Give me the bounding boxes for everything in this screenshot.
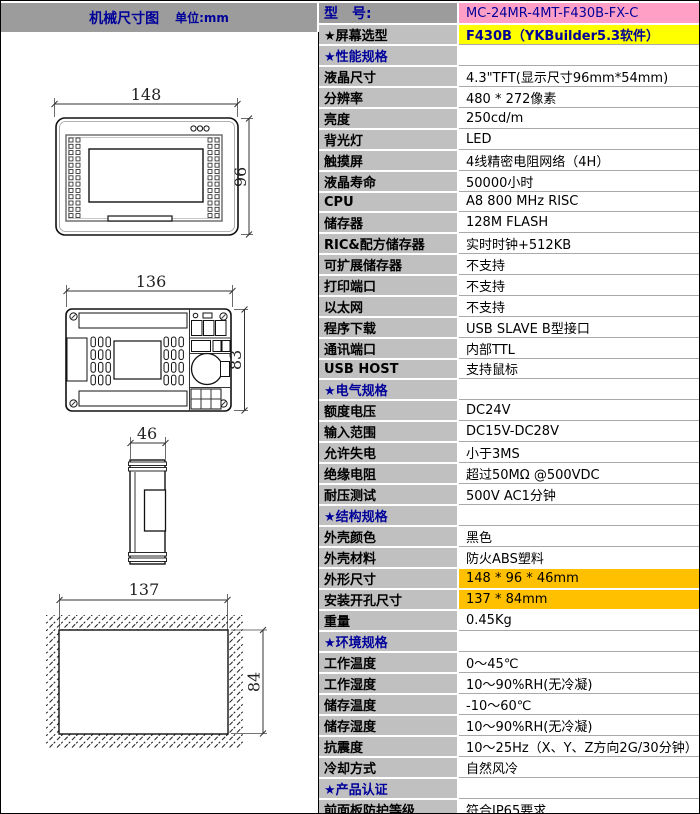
dimension-label: 136 — [136, 272, 167, 291]
spec-value: 防火ABS塑料 — [459, 546, 699, 567]
spec-label: 亮度 — [319, 107, 459, 128]
product-spec-sheet: 机械尺寸图 单位:mm — [0, 0, 700, 814]
spec-value: 10～90%RH(无冷凝) — [459, 714, 699, 735]
section-row: ★结构规格 — [319, 504, 699, 525]
cutout-opening — [59, 630, 228, 734]
spec-value: 128M FLASH — [459, 211, 699, 232]
spec-value: 支持鼠标 — [459, 358, 699, 378]
spec-label: 安装开孔尺寸 — [319, 588, 459, 609]
mechanical-drawing-panel: 机械尺寸图 单位:mm — [1, 1, 319, 813]
spec-row: 外壳材料防火ABS塑料 — [319, 546, 699, 567]
spec-label: 外壳材料 — [319, 546, 459, 567]
spec-row: 打印端口不支持 — [319, 274, 699, 295]
spec-value: DC15V-DC28V — [459, 420, 699, 441]
spec-label: 工作温度 — [319, 651, 459, 672]
section-title: ★环境规格 — [319, 630, 459, 651]
spec-label: 储存湿度 — [319, 714, 459, 735]
spec-label: 液晶尺寸 — [319, 65, 459, 86]
spec-value: 148 * 96 * 46mm — [459, 567, 699, 588]
spec-value: 4.3"TFT(显示尺寸96mm*54mm) — [459, 65, 699, 86]
spec-row: 绝缘电阻超过50MΩ @500VDC — [319, 462, 699, 483]
section-title: ★结构规格 — [319, 504, 459, 525]
spec-row: 冷却方式自然风冷 — [319, 756, 699, 777]
spec-value: 不支持 — [459, 295, 699, 316]
spec-row: 液晶尺寸4.3"TFT(显示尺寸96mm*54mm) — [319, 65, 699, 86]
dimension-label: 84 — [245, 672, 264, 692]
spec-label: 输入范围 — [319, 420, 459, 441]
spec-row: 耐压测试500V AC1分钟 — [319, 483, 699, 504]
spec-label: 通讯端口 — [319, 337, 459, 358]
spec-label: 分辨率 — [319, 86, 459, 107]
spec-label: 打印端口 — [319, 274, 459, 295]
spec-value: 自然风冷 — [459, 756, 699, 777]
spec-row: RIC&配方储存器实时时钟+512KB — [319, 232, 699, 253]
spec-label: 背光灯 — [319, 128, 459, 149]
spec-row: 分辨率480 * 272像素 — [319, 86, 699, 107]
spec-value: 内部TTL — [459, 337, 699, 358]
spec-value: 0～45℃ — [459, 651, 699, 672]
spec-row: 背光灯LED — [319, 128, 699, 149]
spec-label: 液晶寿命 — [319, 170, 459, 191]
screen-type-row: ★屏幕选型F430B（YKBuilder5.3软件） — [319, 23, 699, 44]
section-row: ★性能规格 — [319, 44, 699, 65]
spec-value: 小于3MS — [459, 441, 699, 462]
spec-label: 以太网 — [319, 295, 459, 316]
spec-row: 储存湿度10～90%RH(无冷凝) — [319, 714, 699, 735]
spec-value: 不支持 — [459, 274, 699, 295]
spec-value: -10～60℃ — [459, 693, 699, 714]
spec-label: 程序下载 — [319, 316, 459, 337]
spec-value: 超过50MΩ @500VDC — [459, 462, 699, 483]
spec-value: 250cd/m — [459, 107, 699, 128]
spec-value: USB SLAVE B型接口 — [459, 316, 699, 337]
drawing-panel-header: 机械尺寸图 单位:mm — [1, 1, 319, 32]
dimension-label: 137 — [129, 580, 160, 599]
spec-value: 黑色 — [459, 525, 699, 546]
spec-row: 亮度250cd/m — [319, 107, 699, 128]
model-label: 型 号: — [319, 1, 459, 23]
section-title: ★产品认证 — [319, 777, 459, 798]
spec-row: 程序下载USB SLAVE B型接口 — [319, 316, 699, 337]
spec-value: 500V AC1分钟 — [459, 483, 699, 504]
spec-value: LED — [459, 128, 699, 149]
spec-value: 4线精密电阻网络（4H） — [459, 149, 699, 170]
spec-table: 型 号:MC-24MR-4MT-F430B-FX-C ★屏幕选型F430B（YK… — [319, 1, 699, 814]
spec-label: 允许失电 — [319, 441, 459, 462]
model-row: 型 号:MC-24MR-4MT-F430B-FX-C — [319, 1, 699, 23]
spec-label: 前面板防护等级 — [319, 798, 459, 814]
drawing-panel-title: 机械尺寸图 — [89, 8, 159, 28]
cutout-size-row: 安装开孔尺寸137 * 84mm — [319, 588, 699, 609]
spec-label: 储存温度 — [319, 693, 459, 714]
spec-row: 工作湿度10～90%RH(无冷凝) — [319, 672, 699, 693]
spec-value: 10～25Hz（X、Y、Z方向2G/30分钟） — [459, 735, 699, 756]
spec-row: 重量0.45Kg — [319, 609, 699, 630]
spec-row: 以太网不支持 — [319, 295, 699, 316]
spec-value: 480 * 272像素 — [459, 86, 699, 107]
spec-value: 实时时钟+512KB — [459, 232, 699, 253]
spec-label: 可扩展储存器 — [319, 253, 459, 274]
spec-row: 额度电压DC24V — [319, 399, 699, 420]
section-title: ★电气规格 — [319, 378, 459, 399]
dimension-label: 46 — [137, 424, 157, 443]
spec-label: 耐压测试 — [319, 483, 459, 504]
spec-label: 外壳颜色 — [319, 525, 459, 546]
section-row: ★产品认证 — [319, 777, 699, 798]
drawing-unit-label: 单位:mm — [175, 9, 229, 26]
spec-value: 不支持 — [459, 253, 699, 274]
spec-value: 137 * 84mm — [459, 588, 699, 609]
spec-row: 触摸屏4线精密电阻网络（4H） — [319, 149, 699, 170]
spec-label: 触摸屏 — [319, 149, 459, 170]
dimension-label: 96 — [231, 167, 250, 187]
spec-row: 液晶寿命50000小时 — [319, 170, 699, 191]
outline-size-row: 外形尺寸148 * 96 * 46mm — [319, 567, 699, 588]
section-row: ★电气规格 — [319, 378, 699, 399]
panel-cutout-drawing: 137 84 — [46, 580, 267, 748]
spec-label: 外形尺寸 — [319, 567, 459, 588]
spec-row: 抗震度10～25Hz（X、Y、Z方向2G/30分钟） — [319, 735, 699, 756]
spec-label: USB HOST — [319, 358, 459, 378]
spec-row: 可扩展储存器不支持 — [319, 253, 699, 274]
drawing-area: 148 96 — [1, 32, 319, 814]
side-view-drawing: 46 — [128, 424, 169, 564]
spec-label: 冷却方式 — [319, 756, 459, 777]
section-row: ★环境规格 — [319, 630, 699, 651]
spec-value: 10～90%RH(无冷凝) — [459, 672, 699, 693]
spec-label: 绝缘电阻 — [319, 462, 459, 483]
spec-value: 0.45Kg — [459, 609, 699, 630]
back-view-drawing: 136 — [64, 272, 249, 414]
section-title: ★性能规格 — [319, 44, 459, 65]
spec-label: CPU — [319, 191, 459, 211]
spec-value: 50000小时 — [459, 170, 699, 191]
spec-label: 额度电压 — [319, 399, 459, 420]
model-value: MC-24MR-4MT-F430B-FX-C — [459, 1, 699, 23]
spec-row: 输入范围DC15V-DC28V — [319, 420, 699, 441]
spec-row: 通讯端口内部TTL — [319, 337, 699, 358]
spec-value: F430B（YKBuilder5.3软件） — [459, 23, 699, 44]
dimension-drawings-svg: 148 96 — [1, 32, 319, 814]
spec-row: 外壳颜色黑色 — [319, 525, 699, 546]
spec-label: RIC&配方储存器 — [319, 232, 459, 253]
spec-row: 前面板防护等级符合IP65要求 — [319, 798, 699, 814]
spec-value: DC24V — [459, 399, 699, 420]
dimension-label: 148 — [131, 85, 162, 104]
dimension-label: 83 — [226, 350, 245, 370]
spec-label: 储存器 — [319, 211, 459, 232]
spec-label: ★屏幕选型 — [319, 23, 459, 44]
spec-row: USB HOST支持鼠标 — [319, 358, 699, 378]
spec-row: CPUA8 800 MHz RISC — [319, 191, 699, 211]
spec-row: 允许失电小于3MS — [319, 441, 699, 462]
spec-row: 工作温度0～45℃ — [319, 651, 699, 672]
spec-row: 储存温度-10～60℃ — [319, 693, 699, 714]
spec-value: 符合IP65要求 — [459, 798, 699, 814]
spec-label: 抗震度 — [319, 735, 459, 756]
front-view-drawing: 148 96 — [52, 85, 254, 238]
spec-row: 储存器128M FLASH — [319, 211, 699, 232]
spec-label: 重量 — [319, 609, 459, 630]
spec-value: A8 800 MHz RISC — [459, 191, 699, 211]
spec-label: 工作湿度 — [319, 672, 459, 693]
